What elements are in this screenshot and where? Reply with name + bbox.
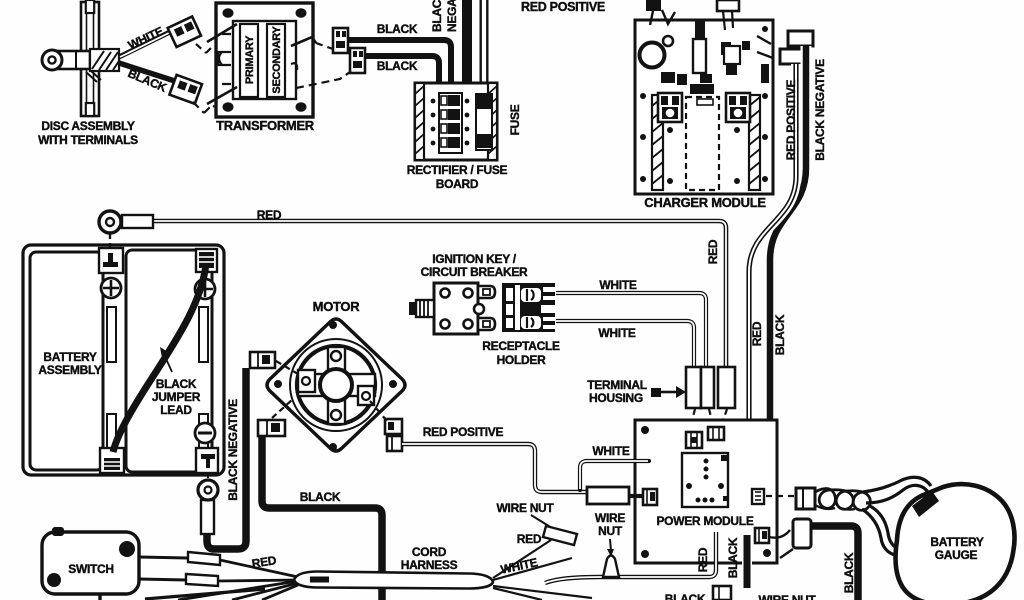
svg-text:RED: RED bbox=[706, 239, 720, 264]
svg-text:PRIMARY: PRIMARY bbox=[244, 35, 256, 84]
svg-text:RED: RED bbox=[696, 547, 710, 572]
svg-text:DISC ASSEMBLY: DISC ASSEMBLY bbox=[41, 119, 135, 133]
svg-text:BLACK NEGATIVE: BLACK NEGATIVE bbox=[226, 399, 240, 501]
svg-text:JUMPER: JUMPER bbox=[152, 390, 201, 404]
svg-text:RECTIFIER / FUSE: RECTIFIER / FUSE bbox=[407, 163, 508, 177]
svg-text:BATTERY: BATTERY bbox=[43, 350, 97, 364]
svg-text:HARNESS: HARNESS bbox=[401, 558, 458, 572]
svg-text:WHITE: WHITE bbox=[592, 444, 629, 458]
svg-text:BLACK: BLACK bbox=[665, 592, 706, 600]
svg-text:SECONDARY: SECONDARY bbox=[271, 25, 283, 93]
svg-text:CIRCUIT BREAKER: CIRCUIT BREAKER bbox=[421, 265, 528, 279]
svg-text:POWER MODULE: POWER MODULE bbox=[656, 514, 753, 528]
svg-text:TRANSFORMER: TRANSFORMER bbox=[216, 118, 315, 133]
svg-text:BLACK: BLACK bbox=[773, 314, 787, 355]
svg-text:RECEPTACLE: RECEPTACLE bbox=[482, 339, 560, 353]
svg-text:RED: RED bbox=[750, 321, 764, 346]
svg-text:LEAD: LEAD bbox=[160, 403, 192, 417]
svg-text:TERMINAL: TERMINAL bbox=[587, 378, 647, 392]
svg-text:BLACK: BLACK bbox=[377, 59, 418, 73]
svg-text:RED: RED bbox=[517, 532, 542, 546]
svg-text:IGNITION KEY /: IGNITION KEY / bbox=[432, 252, 517, 266]
svg-text:BLACK: BLACK bbox=[726, 537, 740, 578]
svg-text:WIRE: WIRE bbox=[595, 511, 625, 525]
svg-text:BLACK: BLACK bbox=[842, 552, 856, 593]
svg-text:BLACK: BLACK bbox=[300, 490, 341, 504]
svg-text:HOLDER: HOLDER bbox=[497, 353, 547, 367]
svg-text:NEGATIVE: NEGATIVE bbox=[445, 0, 459, 32]
svg-text:ASSEMBLY: ASSEMBLY bbox=[38, 363, 101, 377]
svg-text:RED POSITIVE: RED POSITIVE bbox=[423, 425, 504, 439]
svg-text:WHITE: WHITE bbox=[598, 326, 635, 340]
svg-text:SWITCH: SWITCH bbox=[68, 562, 114, 576]
svg-text:BLACK NEGATIVE: BLACK NEGATIVE bbox=[813, 59, 827, 161]
svg-text:CHARGER MODULE: CHARGER MODULE bbox=[644, 195, 766, 210]
svg-text:RED: RED bbox=[257, 208, 282, 222]
svg-text:MOTOR: MOTOR bbox=[313, 299, 361, 314]
svg-text:BATTERY: BATTERY bbox=[930, 535, 984, 549]
svg-text:FUSE: FUSE bbox=[508, 104, 522, 135]
svg-text:RED POSITIVE: RED POSITIVE bbox=[521, 0, 605, 14]
svg-text:RED POSITIVE: RED POSITIVE bbox=[784, 79, 798, 160]
svg-text:WIRE NUT: WIRE NUT bbox=[497, 501, 555, 515]
svg-text:WIRE NUT: WIRE NUT bbox=[759, 593, 817, 600]
svg-text:CORD: CORD bbox=[412, 545, 447, 559]
svg-text:BLACK: BLACK bbox=[377, 22, 418, 36]
svg-text:WITH TERMINALS: WITH TERMINALS bbox=[38, 133, 138, 147]
svg-text:BLACK: BLACK bbox=[156, 377, 197, 391]
svg-text:BOARD: BOARD bbox=[436, 177, 479, 191]
svg-text:GAUGE: GAUGE bbox=[935, 548, 978, 562]
svg-text:BLACK: BLACK bbox=[430, 0, 444, 32]
svg-text:WHITE: WHITE bbox=[599, 278, 636, 292]
svg-text:NUT: NUT bbox=[598, 524, 623, 538]
svg-text:HOUSING: HOUSING bbox=[589, 391, 643, 405]
